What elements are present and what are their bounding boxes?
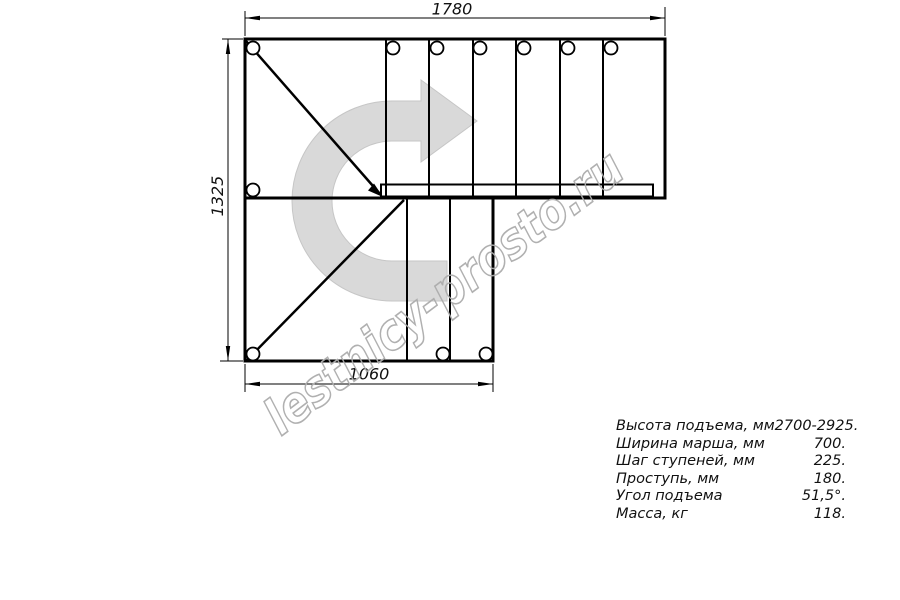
mounting-hole xyxy=(387,42,400,55)
spec-row: Ширина марша, мм 700. xyxy=(616,436,846,454)
dim-arrow-right xyxy=(650,16,665,20)
spec-row: Высота подъема, мм 2700-2925. xyxy=(616,418,846,436)
dim-arrow-down xyxy=(226,346,230,361)
spec-value: 700. xyxy=(814,436,846,454)
mounting-hole xyxy=(247,42,260,55)
dimension-left-label: 1325 xyxy=(208,176,227,217)
spec-row: Проступь, мм 180. xyxy=(616,471,846,489)
spec-value: 51,5°. xyxy=(802,488,846,506)
dim-arrow-left xyxy=(245,382,260,386)
spec-row: Шаг ступеней, мм 225. xyxy=(616,453,846,471)
spec-label: Угол подъема xyxy=(616,488,723,506)
spec-row: Угол подъема 51,5°. xyxy=(616,488,846,506)
spec-row: Масса, кг 118. xyxy=(616,506,846,524)
spec-label: Шаг ступеней, мм xyxy=(616,453,755,471)
mounting-hole xyxy=(605,42,618,55)
spec-value: 225. xyxy=(814,453,846,471)
spec-label: Ширина марша, мм xyxy=(616,436,765,454)
spec-label: Высота подъема, мм xyxy=(616,418,775,436)
spec-value: 2700-2925. xyxy=(775,418,859,436)
dim-arrow-up xyxy=(226,39,230,54)
specs-table: Высота подъема, мм 2700-2925. Ширина мар… xyxy=(616,418,846,524)
mounting-hole xyxy=(247,184,260,197)
spec-value: 180. xyxy=(814,471,846,489)
dim-arrow-left xyxy=(245,16,260,20)
mounting-hole xyxy=(562,42,575,55)
dim-arrow-right xyxy=(478,382,493,386)
mounting-hole xyxy=(431,42,444,55)
spec-label: Масса, кг xyxy=(616,506,688,524)
mounting-hole xyxy=(480,348,493,361)
mounting-hole xyxy=(474,42,487,55)
mounting-hole xyxy=(247,348,260,361)
spec-value: 118. xyxy=(814,506,846,524)
blueprint-page: 1780 1325 1060 lestnicy-prosto.ru Высота… xyxy=(0,0,900,600)
dimension-top-label: 1780 xyxy=(432,0,473,19)
spec-label: Проступь, мм xyxy=(616,471,719,489)
mounting-hole xyxy=(518,42,531,55)
mounting-hole xyxy=(437,348,450,361)
